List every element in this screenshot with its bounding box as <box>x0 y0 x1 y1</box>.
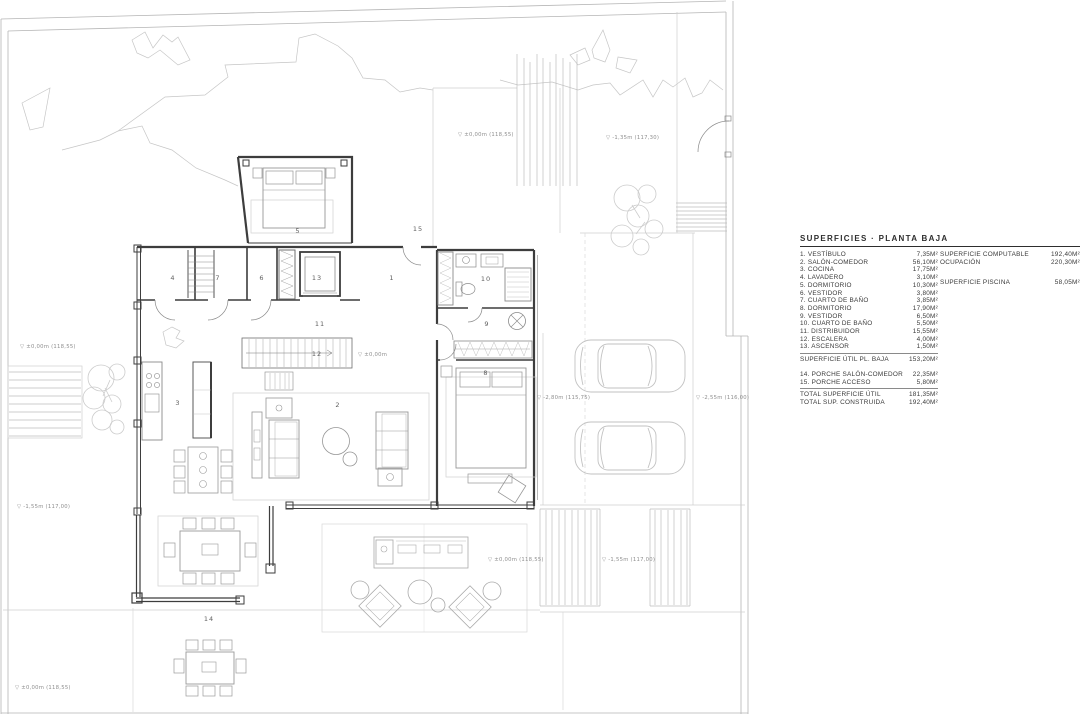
side-table <box>351 581 369 599</box>
main-stair-12 <box>242 338 352 390</box>
ramp-hatch <box>517 54 577 186</box>
legend-subtotal-value: 153,20M² <box>909 356 938 364</box>
legend-room-8-label: 8. DORMITORIO <box>800 305 852 313</box>
side-table <box>483 582 501 600</box>
steps-left <box>9 372 81 436</box>
legend-room-3-label: 3. COCINA <box>800 266 834 274</box>
vestidor-9 <box>454 313 532 359</box>
legend-porch-14: 14. PORCHE SALÓN-COMEDOR22,35M² <box>800 371 938 379</box>
legend-porch-15: 15. PORCHE ACCESO5,80M² <box>800 379 938 387</box>
rock-outline <box>592 30 610 62</box>
legend-room-11-value: 15,55M² <box>913 328 938 336</box>
legend-right-2-label: OCUPACIÓN <box>940 259 980 267</box>
legend-room-2-label: 2. SALÓN-COMEDOR <box>800 259 868 267</box>
room-number-2: 2 <box>335 401 340 409</box>
legend-porch-15-value: 5,80M² <box>917 379 938 387</box>
dining-table-garden <box>186 652 234 684</box>
legend-room-5-label: 5. DORMITORIO <box>800 282 852 290</box>
legend-room-5: 5. DORMITORIO10,30M² <box>800 282 938 290</box>
lounge-chair-1 <box>359 585 401 627</box>
tree-cluster-right <box>611 185 663 255</box>
legend-porch-14-value: 22,35M² <box>913 371 938 379</box>
legend-room-7: 7. CUARTO DE BAÑO3,85M² <box>800 297 938 305</box>
room-number-10: 10 <box>481 275 491 283</box>
site-lines <box>3 12 745 712</box>
gate-arc <box>698 121 729 152</box>
room-number-1: 1 <box>389 274 394 282</box>
sofa-a <box>266 398 299 478</box>
legend-right-column: SUPERFICIE COMPUTABLE192,40M²OCUPACIÓN22… <box>940 251 1080 287</box>
legend-right-2: OCUPACIÓN220,30M² <box>940 259 1080 267</box>
legend-room-5-value: 10,30M² <box>913 282 938 290</box>
sink <box>463 257 470 264</box>
toilet <box>461 284 475 295</box>
legend-total-list: TOTAL SUPERFICIE ÚTIL181,35M²TOTAL SUP. … <box>800 391 938 406</box>
level-annotation-8: ▽ ±0,00m (118,55) <box>488 557 544 563</box>
legend-room-12: 12. ESCALERA4,00M² <box>800 336 938 344</box>
room-number-13: 13 <box>312 274 322 282</box>
room-number-9: 9 <box>484 320 489 328</box>
legend-room-7-value: 3,85M² <box>917 297 938 305</box>
bedroom-8 <box>441 366 536 503</box>
shower <box>505 268 531 301</box>
lounge-chair-2 <box>449 586 491 628</box>
legend-room-1: 1. VESTÍBULO7,35M² <box>800 251 938 259</box>
legend-room-10: 10. CUARTO DE BAÑO5,50M² <box>800 320 938 328</box>
legend-panel: SUPERFICIES · PLANTA BAJA 1. VESTÍBULO7,… <box>800 234 1080 407</box>
floor-plan-sheet: 123456789101112131415 ▽ ±0,00m (118,55)▽… <box>0 0 1080 720</box>
legend-right-3-value: 58,05M² <box>1055 279 1080 287</box>
room-number-11: 11 <box>315 320 325 328</box>
steps-right-top <box>676 203 727 231</box>
room-number-7: 7 <box>215 274 220 282</box>
legend-divider <box>800 388 938 389</box>
room-number-4: 4 <box>170 274 175 282</box>
room-number-labels: 123456789101112131415 <box>170 225 491 623</box>
legend-room-13: 13. ASCENSOR1,50M² <box>800 343 938 351</box>
level-annotation-7: ▽ -1,55m (117,00) <box>17 504 70 510</box>
legend-room-11-label: 11. DISTRIBUIDOR <box>800 328 860 336</box>
rock-outline <box>132 32 190 65</box>
rock-sketch <box>163 327 184 348</box>
legend-room-9-value: 6,50M² <box>917 313 938 321</box>
legend-room-7-label: 7. CUARTO DE BAÑO <box>800 297 869 305</box>
rock-outline <box>616 57 637 73</box>
legend-columns: 1. VESTÍBULO7,35M²2. SALÓN-COMEDOR56,10M… <box>800 251 1080 407</box>
legend-room-1-label: 1. VESTÍBULO <box>800 251 846 259</box>
kitchen-table <box>174 447 232 493</box>
level-annotation-2: ▽ -1,35m (117,30) <box>606 135 659 141</box>
cars <box>575 340 685 474</box>
legend-right-2-value: 220,30M² <box>1051 259 1080 267</box>
legend-room-1-value: 7,35M² <box>917 251 938 259</box>
legend-room-10-label: 10. CUARTO DE BAÑO <box>800 320 872 328</box>
legend-room-3-value: 17,75M² <box>913 266 938 274</box>
legend-spacer <box>800 364 938 371</box>
legend-room-11: 11. DISTRIBUIDOR15,55M² <box>800 328 938 336</box>
porch-dining <box>158 516 258 586</box>
legend-room-list: 1. VESTÍBULO7,35M²2. SALÓN-COMEDOR56,10M… <box>800 251 938 351</box>
legend-room-12-value: 4,00M² <box>917 336 938 344</box>
level-annotation-6: ▽ -2,55m (116,00) <box>696 395 749 401</box>
legend-porch-list: 14. PORCHE SALÓN-COMEDOR22,35M²15. PORCH… <box>800 371 938 386</box>
entrance-door-arc <box>403 247 421 265</box>
vertical-circulation <box>188 250 352 390</box>
bed-room8 <box>456 368 526 468</box>
legend-right-1-value: 192,40M² <box>1051 251 1080 259</box>
coffee-tables <box>323 428 358 467</box>
level-annotation-10: ▽ ±0,00m (118,55) <box>15 685 71 691</box>
tree-cluster-left <box>83 364 125 434</box>
garden-dining <box>174 640 246 696</box>
legend-right-3: SUPERFICIE PISCINA58,05M² <box>940 279 1080 287</box>
legend-subtotal-row: SUPERFICIE ÚTIL PL. BAJA 153,20M² <box>800 356 938 364</box>
legend-total-2-value: 192,40M² <box>909 399 938 407</box>
legend-room-2-value: 56,10M² <box>913 259 938 267</box>
level-annotation-3: ▽ ±0,00m (118,55) <box>20 344 76 350</box>
car-2 <box>575 422 685 474</box>
legend-room-13-label: 13. ASCENSOR <box>800 343 849 351</box>
service-stair <box>188 250 214 298</box>
legend-total-1-value: 181,35M² <box>909 391 938 399</box>
legend-subtotal-label: SUPERFICIE ÚTIL PL. BAJA <box>800 356 889 364</box>
legend-right-1-label: SUPERFICIE COMPUTABLE <box>940 251 1029 259</box>
legend-room-8-value: 17,90M² <box>913 305 938 313</box>
legend-room-3: 3. COCINA17,75M² <box>800 266 938 274</box>
steps-bottom-b <box>655 510 687 605</box>
sofa-b <box>376 412 408 486</box>
wardrobe <box>454 341 532 358</box>
legend-title-rule <box>800 246 1080 247</box>
legend-room-4-value: 3,10M² <box>917 274 938 282</box>
room-number-5: 5 <box>295 227 300 235</box>
legend-total-1: TOTAL SUPERFICIE ÚTIL181,35M² <box>800 391 938 399</box>
car-1 <box>575 340 685 392</box>
legend-room-4: 4. LAVADERO3,10M² <box>800 274 938 282</box>
legend-total-2: TOTAL SUP. CONSTRUIDA192,40M² <box>800 399 938 407</box>
level-annotation-5: ▽ -2,80m (115,75) <box>537 395 590 401</box>
legend-title: SUPERFICIES · PLANTA BAJA <box>800 234 1080 243</box>
bed-room5 <box>251 168 335 233</box>
legend-room-4-label: 4. LAVADERO <box>800 274 844 282</box>
room-number-12: 12 <box>312 350 322 358</box>
level-annotation-4: ▽ ±0,00m <box>358 352 387 358</box>
legend-porch-15-label: 15. PORCHE ACCESO <box>800 379 871 387</box>
legend-right-3-label: SUPERFICIE PISCINA <box>940 279 1010 287</box>
rock-outline <box>570 48 590 65</box>
living-room <box>233 393 429 500</box>
dining-table-porch <box>180 531 240 571</box>
tv-unit <box>252 412 262 478</box>
level-annotation-9: ▽ -1,55m (117,00) <box>602 557 655 563</box>
legend-room-13-value: 1,50M² <box>917 343 938 351</box>
round-table <box>408 580 432 604</box>
room-number-14: 14 <box>204 615 214 623</box>
legend-porch-14-label: 14. PORCHE SALÓN-COMEDOR <box>800 371 903 379</box>
sideboard <box>374 537 468 568</box>
room-number-6: 6 <box>259 274 264 282</box>
rock-outline <box>22 88 50 130</box>
legend-total-1-label: TOTAL SUPERFICIE ÚTIL <box>800 391 881 399</box>
legend-right-1: SUPERFICIE COMPUTABLE192,40M² <box>940 251 1080 259</box>
legend-room-10-value: 5,50M² <box>917 320 938 328</box>
steps-bottom-a <box>546 510 597 605</box>
legend-divider <box>800 353 938 354</box>
legend-total-2-label: TOTAL SUP. CONSTRUIDA <box>800 399 885 407</box>
outdoor-lounge <box>322 524 527 632</box>
door-swings <box>155 116 731 360</box>
level-annotation-1: ▽ ±0,00m (118,55) <box>458 132 514 138</box>
legend-room-8: 8. DORMITORIO17,90M² <box>800 305 938 313</box>
room-number-3: 3 <box>175 399 180 407</box>
legend-room-12-label: 12. ESCALERA <box>800 336 848 344</box>
legend-room-2: 2. SALÓN-COMEDOR56,10M² <box>800 259 938 267</box>
closet-strip <box>279 250 295 299</box>
room-number-15: 15 <box>413 225 423 233</box>
room-number-8: 8 <box>483 369 488 377</box>
legend-left-column: 1. VESTÍBULO7,35M²2. SALÓN-COMEDOR56,10M… <box>800 251 938 407</box>
legend-room-6-value: 3,80M² <box>917 290 938 298</box>
